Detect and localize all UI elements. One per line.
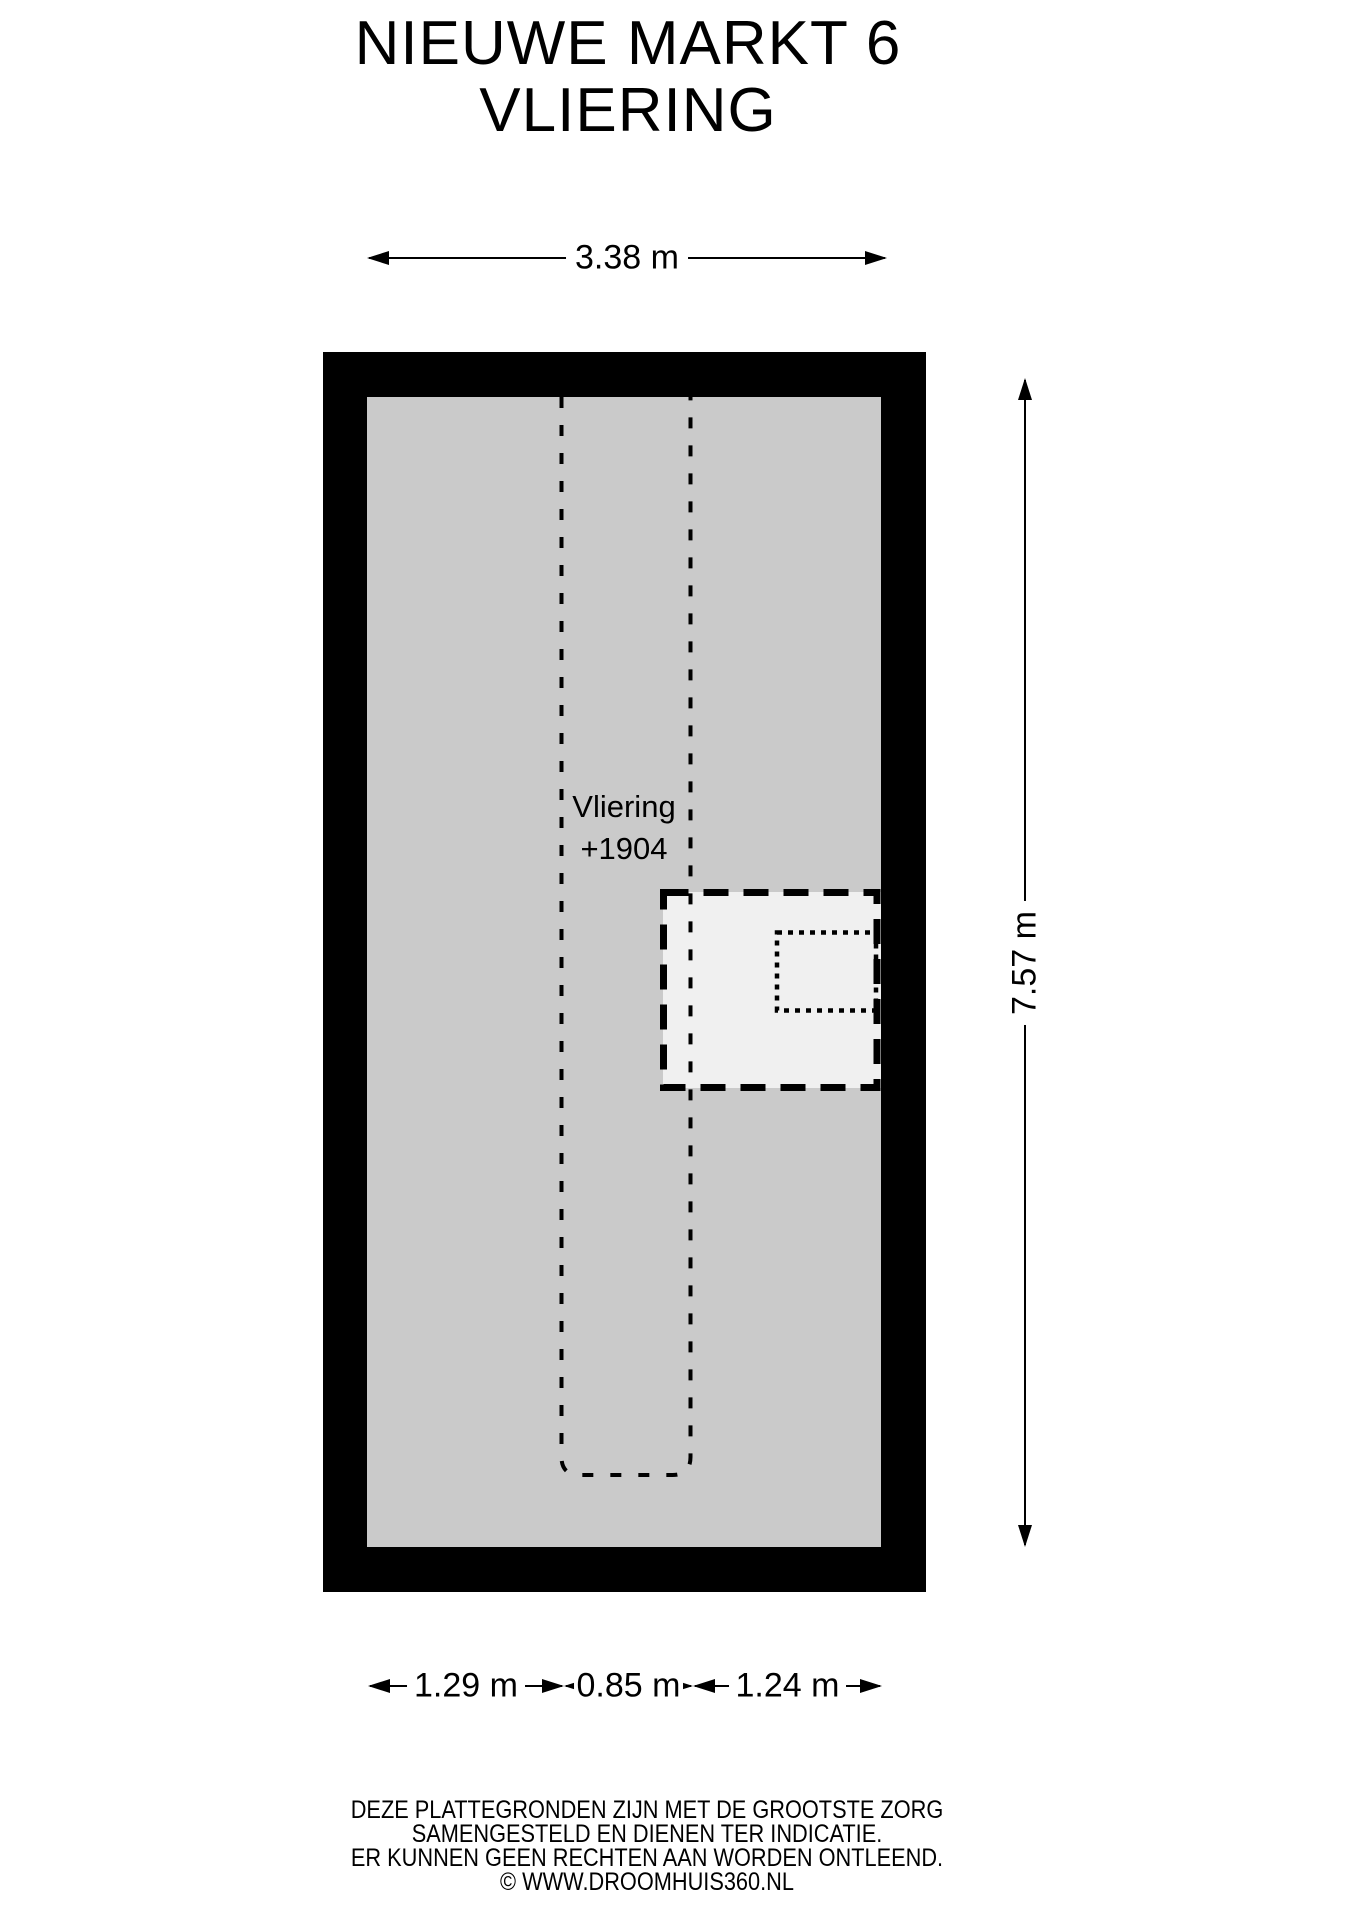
footer-disclaimer: DEZE PLATTEGRONDEN ZIJN MET DE GROOTSTE … [0,1798,1294,1894]
footer-line-3: ER KUNNEN GEEN RECHTEN AAN WORDEN ONTLEE… [84,1846,1210,1870]
dimension-bottom-segment-2-label: 0.85 m [574,1667,684,1706]
arrow-right-icon [860,1679,882,1693]
floorplan-drawing [0,0,1358,1920]
arrow-down-icon [1018,1525,1032,1547]
dimension-bottom-segment-3-label: 1.24 m [729,1667,847,1706]
dimension-right-height-label: 7.57 m [1006,901,1045,1025]
arrow-left-icon [693,1679,715,1693]
floorplan-page: NIEUWE MARKT 6 VLIERING 3.38 m Vliering … [0,0,1358,1920]
arrow-up-icon [1018,378,1032,400]
dimension-bottom-segment-1-label: 1.29 m [407,1667,525,1706]
footer-copyright: © WWW.DROOMHUIS360.NL [84,1870,1210,1894]
room-name: Vliering [474,786,774,828]
room-label: Vliering +1904 [474,786,774,870]
arrow-right-icon [542,1679,564,1693]
footer-line-2: SAMENGESTELD EN DIENEN TER INDICATIE. [84,1822,1210,1846]
dimension-bottom-segment-1: 1.29 m [368,1672,564,1700]
arrow-left-icon [368,1679,390,1693]
dimension-bottom-segment-3: 1.24 m [693,1672,882,1700]
dimension-right-height: 7.57 m [1003,378,1047,1547]
footer-line-1: DEZE PLATTEGRONDEN ZIJN MET DE GROOTSTE … [84,1798,1210,1822]
room-elevation: +1904 [474,828,774,870]
stair-opening-fill [663,892,881,1088]
dimension-bottom-segment-2: 0.85 m [564,1672,693,1700]
